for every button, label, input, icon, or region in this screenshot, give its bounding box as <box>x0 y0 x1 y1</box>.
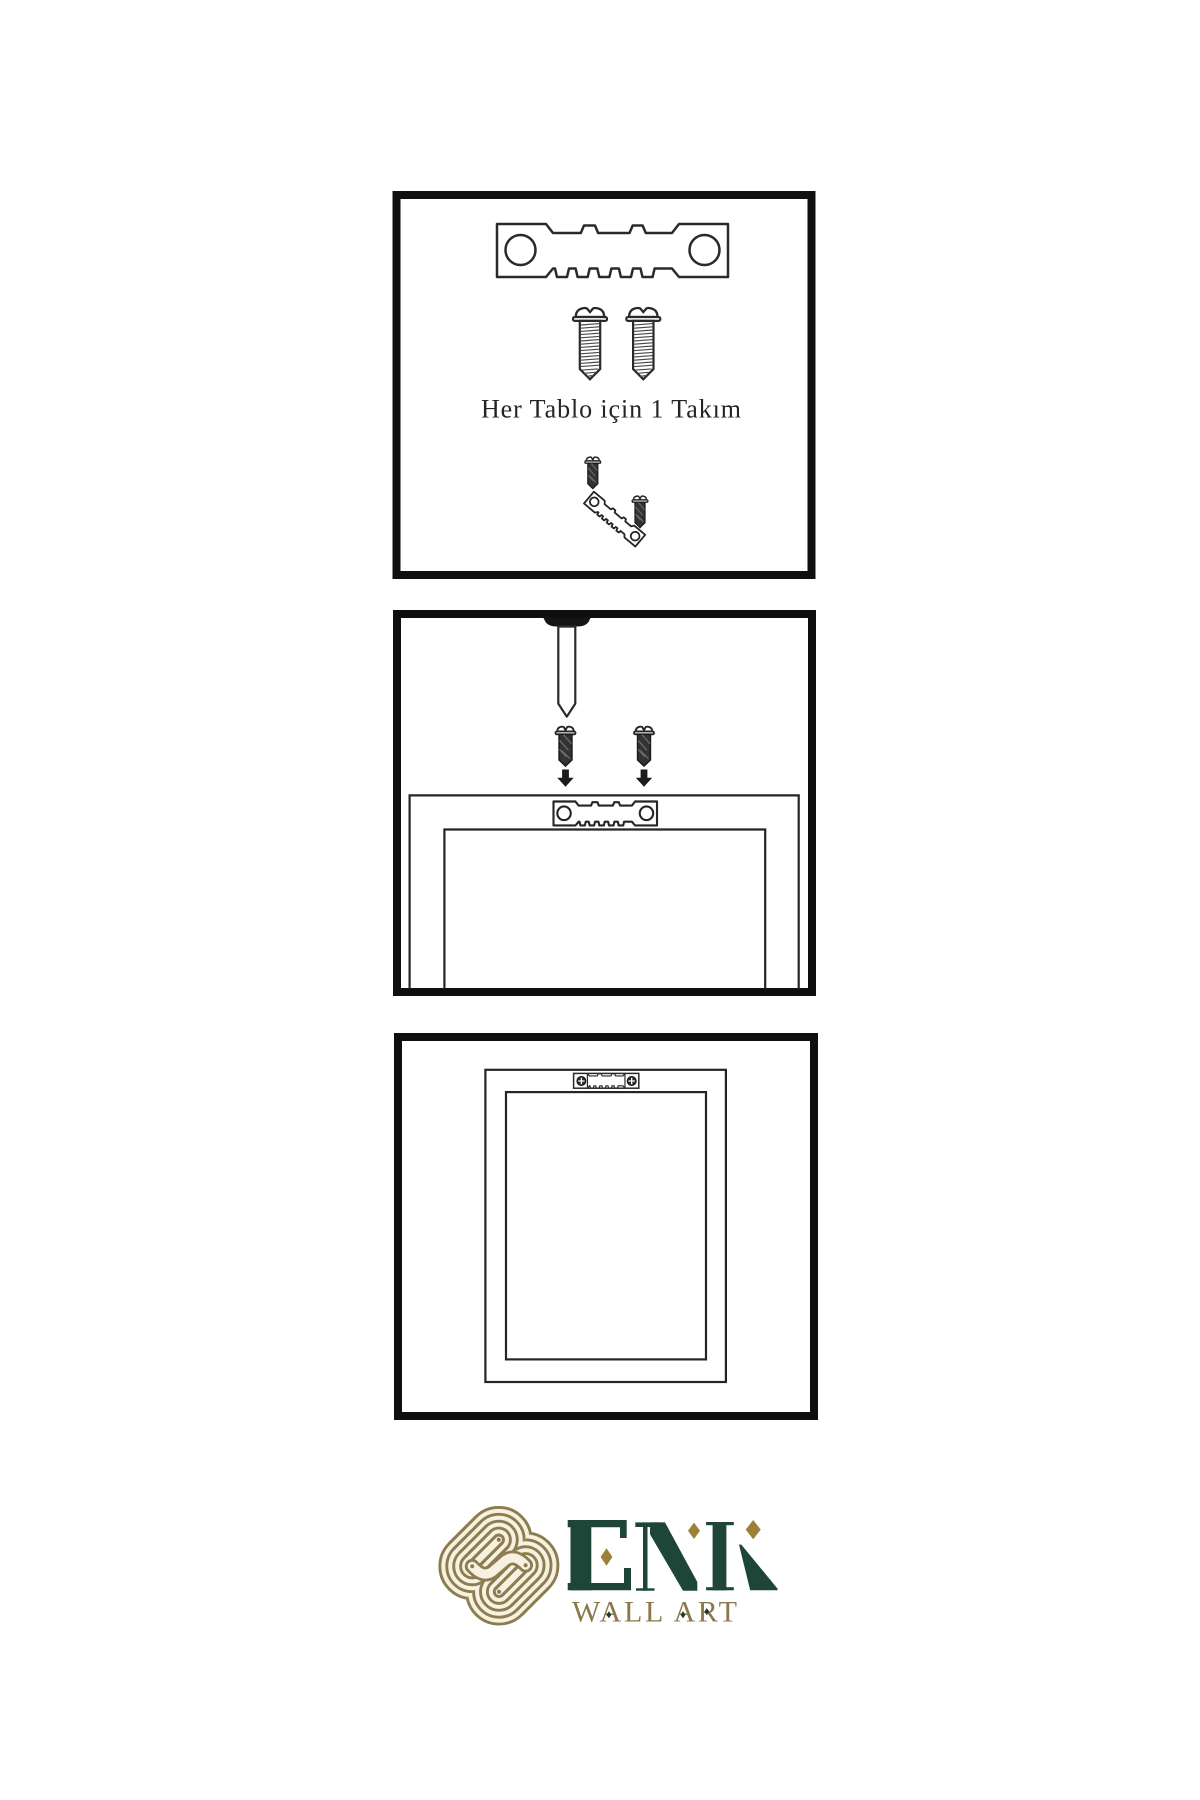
svg-text:WALL ART: WALL ART <box>572 1596 737 1629</box>
svg-text:Her Tablo için 1 Takım: Her Tablo için 1 Takım <box>481 395 741 424</box>
